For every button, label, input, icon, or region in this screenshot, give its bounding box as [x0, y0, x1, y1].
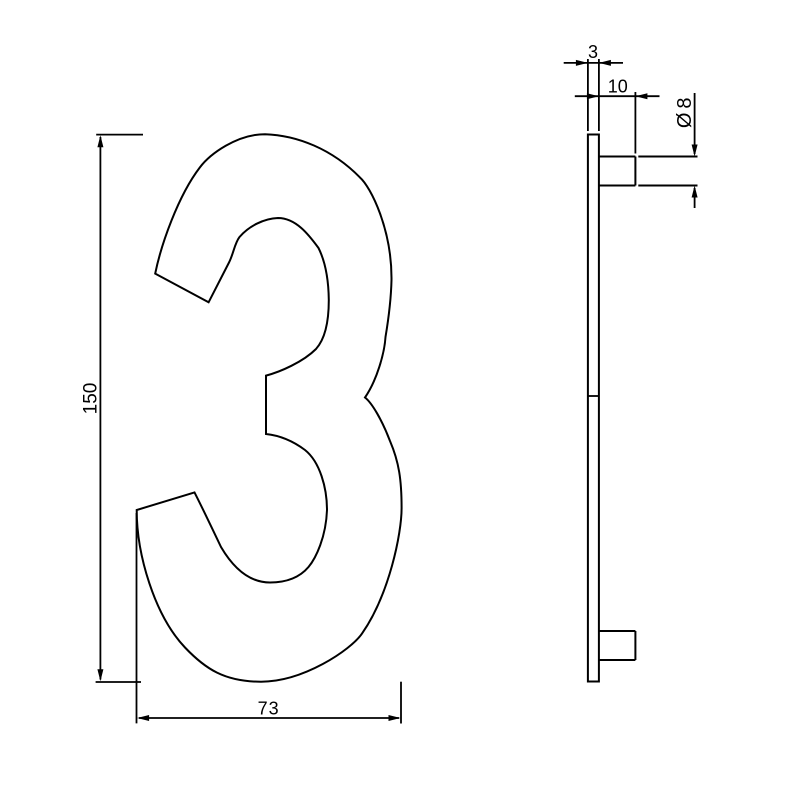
svg-text:3: 3: [588, 42, 598, 62]
svg-text:10: 10: [608, 77, 628, 97]
svg-text:73: 73: [258, 699, 280, 719]
svg-text:150: 150: [81, 383, 102, 415]
svg-text:Ø8: Ø8: [674, 93, 696, 128]
